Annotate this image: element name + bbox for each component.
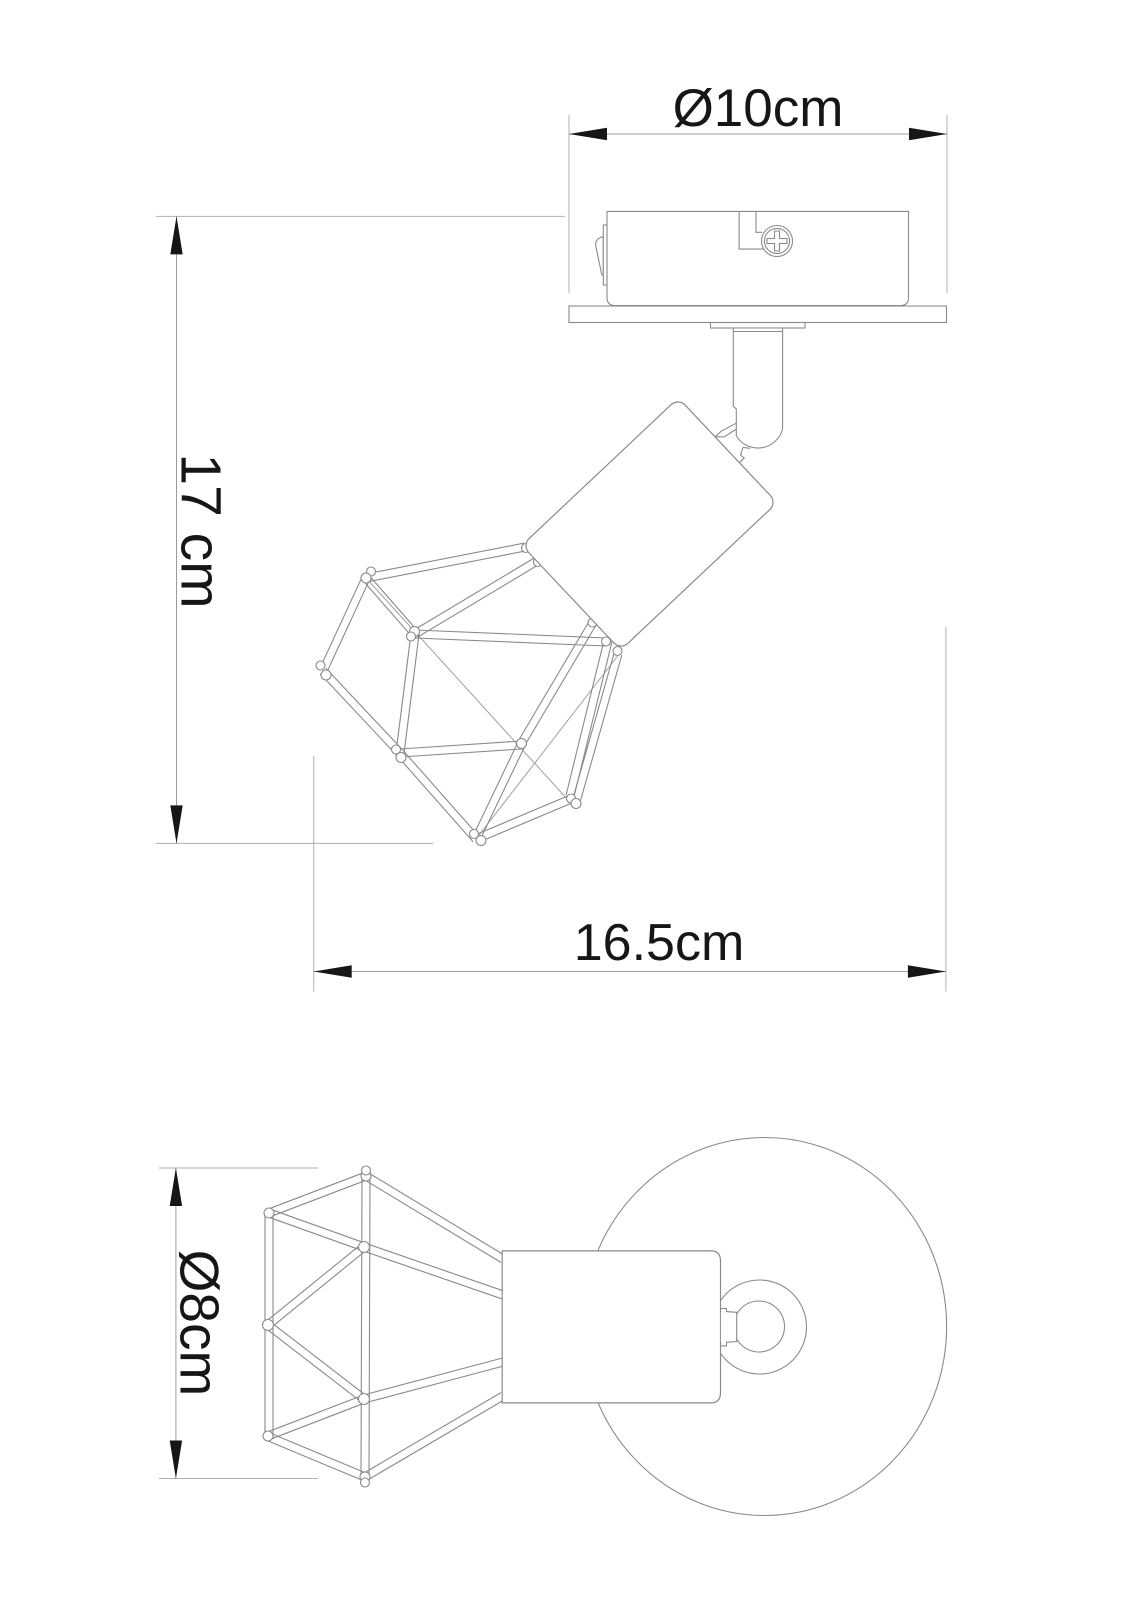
svg-text:Ø8cm: Ø8cm [169,1250,231,1397]
svg-text:Ø10cm: Ø10cm [673,79,844,138]
svg-text:17 cm: 17 cm [169,453,233,608]
svg-text:16.5cm: 16.5cm [574,914,745,972]
